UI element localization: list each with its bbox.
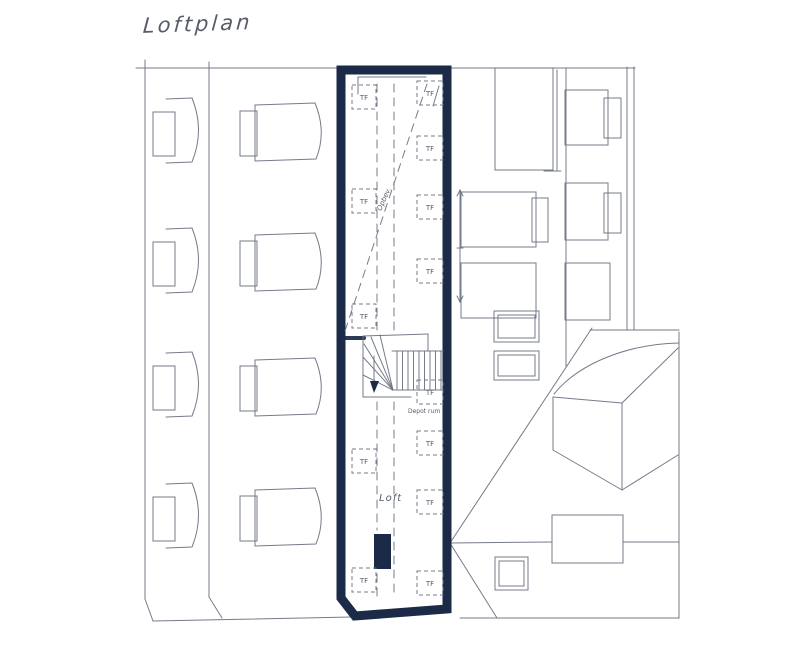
roof-dormer-side: [604, 98, 621, 138]
dormer-roof: [255, 103, 321, 161]
floor-plan-svg: Opbev.Depot rumLoftTFTFTFTFTFTFTFTFTFTFT…: [0, 0, 800, 654]
dormer-roof: [166, 98, 199, 163]
dormer-small: [153, 98, 199, 163]
tf-label: TF: [425, 204, 434, 212]
tf-label: TF: [425, 580, 434, 588]
tf-label: TF: [425, 499, 434, 507]
dormer-window: [153, 497, 175, 541]
dormer-large: [240, 103, 321, 161]
tf-label: TF: [425, 90, 434, 98]
left-terrace-block: [145, 60, 352, 621]
dormer-window: [240, 366, 257, 411]
hip-line: [622, 455, 678, 490]
dormer-large: [240, 488, 321, 546]
tf-label: TF: [359, 458, 368, 466]
roof-section: [495, 68, 553, 170]
dormer-small: [153, 352, 199, 417]
hip-line: [622, 348, 678, 403]
tf-label: TF: [359, 198, 368, 206]
terrace-edge-jog: [209, 597, 222, 618]
dormer-small: [153, 228, 199, 293]
roof-dormer: [565, 183, 608, 240]
dormer-large: [240, 358, 321, 416]
roof-dormer-side: [604, 193, 621, 233]
skylight-frame-inner: [499, 561, 524, 586]
dormer-window: [153, 112, 175, 156]
roof-dormer: [552, 515, 623, 563]
curved-roof-edge: [554, 343, 679, 394]
roof-dormer: [565, 90, 608, 145]
roof-dormer: [461, 263, 536, 318]
tf-label: TF: [425, 145, 434, 153]
loft-room-label: Loft: [379, 493, 402, 504]
tf-label: TF: [359, 313, 368, 321]
dormer-window: [240, 496, 257, 541]
skylight-frame: [494, 311, 539, 342]
dormer-roof: [255, 358, 321, 416]
dormer-window: [153, 366, 175, 410]
terrace-bottom-line: [153, 617, 352, 621]
skylight-frame: [495, 557, 528, 590]
dormer-window: [153, 242, 175, 286]
ridge-line: [450, 542, 552, 543]
skylight-frame-inner: [498, 355, 535, 376]
tf-label: TF: [425, 440, 434, 448]
right-neighbour-block: [461, 67, 679, 618]
dormer-window: [240, 111, 257, 156]
hip-line: [553, 397, 622, 403]
hip-roof-building: [450, 328, 679, 618]
dormer-small: [153, 483, 199, 548]
hip-line: [450, 543, 497, 618]
roof-dormer: [565, 263, 610, 320]
roof-dormer: [461, 192, 536, 247]
dormer-roof: [255, 233, 321, 291]
loftplan-page: Loftplan Opbev.Depot rumLoftTFTFTFTFTFTF…: [0, 0, 800, 654]
hip-line: [553, 450, 622, 490]
roof-dormer-side: [532, 198, 548, 242]
tf-label: TF: [425, 268, 434, 276]
valley-line: [450, 328, 592, 543]
tf-label: TF: [359, 94, 368, 102]
dormer-roof: [166, 483, 199, 548]
tf-label: TF: [359, 577, 368, 585]
existing-note-label: Depot rum: [408, 408, 440, 415]
dimension-line: [457, 190, 463, 302]
dormer-roof: [255, 488, 321, 546]
dormer-roof: [166, 228, 199, 293]
dormer-large: [240, 233, 321, 291]
dormer-roof: [166, 352, 199, 417]
chimney: [374, 534, 391, 569]
tf-label: TF: [425, 389, 434, 397]
terrace-edge-jog: [145, 599, 153, 621]
dormer-window: [240, 241, 257, 286]
